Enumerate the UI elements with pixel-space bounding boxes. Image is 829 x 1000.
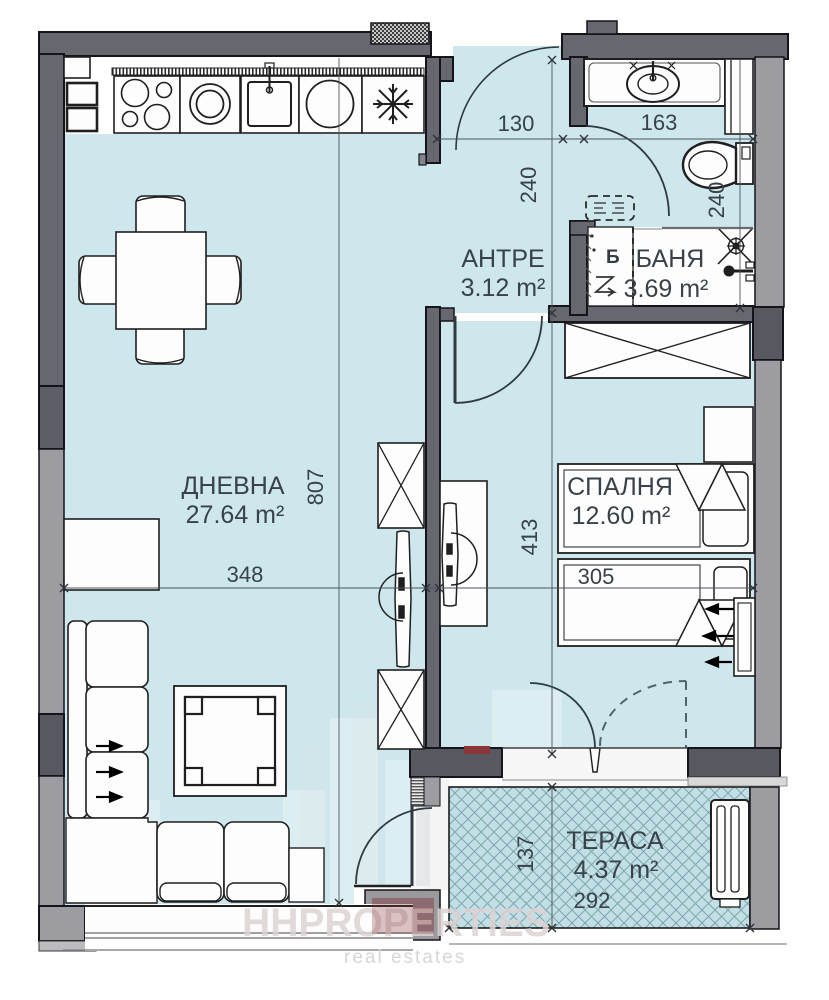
svg-text:305: 305 bbox=[578, 564, 615, 589]
svg-text:ДНЕВНА: ДНЕВНА bbox=[181, 472, 284, 500]
svg-text:240: 240 bbox=[516, 167, 541, 204]
svg-text:СПАЛНЯ: СПАЛНЯ bbox=[567, 473, 673, 501]
svg-text:real estates: real estates bbox=[344, 947, 466, 968]
svg-text:4.37 m²: 4.37 m² bbox=[574, 856, 659, 884]
svg-text:12.60 m²: 12.60 m² bbox=[572, 502, 671, 530]
svg-text:807: 807 bbox=[303, 469, 328, 506]
svg-text:130: 130 bbox=[498, 111, 535, 136]
svg-text:240: 240 bbox=[704, 182, 729, 219]
svg-text:БАНЯ: БАНЯ bbox=[636, 245, 705, 273]
svg-text:348: 348 bbox=[227, 562, 264, 587]
svg-text:АНТРЕ: АНТРЕ bbox=[461, 245, 544, 273]
svg-text:137: 137 bbox=[513, 836, 538, 873]
svg-text:413: 413 bbox=[517, 519, 542, 556]
svg-text:163: 163 bbox=[641, 110, 678, 135]
svg-text:ТЕРАСА: ТЕРАСА bbox=[566, 827, 664, 855]
svg-text:3.69 m²: 3.69 m² bbox=[624, 275, 709, 303]
svg-text:3.12 m²: 3.12 m² bbox=[461, 274, 546, 302]
svg-text:292: 292 bbox=[574, 888, 611, 913]
svg-text:Б: Б bbox=[606, 247, 620, 268]
svg-text:27.64 m²: 27.64 m² bbox=[186, 501, 285, 529]
